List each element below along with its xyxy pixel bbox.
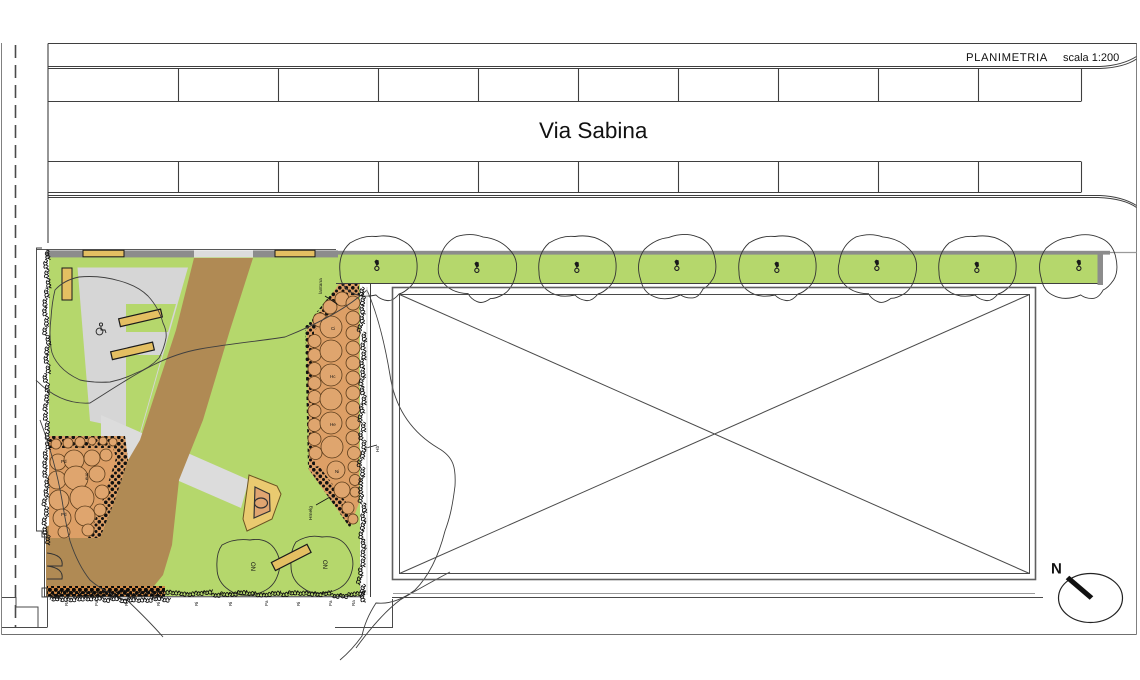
svg-text:Ci: Ci	[331, 326, 335, 331]
svg-text:lantana: lantana	[318, 278, 324, 294]
svg-text:Ni: Ni	[335, 469, 339, 474]
svg-text:He: He	[330, 422, 336, 427]
svg-text:Pa: Pa	[328, 600, 333, 606]
svg-text:scala 1:200: scala 1:200	[1063, 52, 1119, 64]
svg-text:ON: ON	[249, 562, 255, 571]
svg-text:Hc: Hc	[330, 374, 336, 379]
svg-text:N: N	[1051, 561, 1062, 578]
svg-text:Ri: Ri	[124, 602, 129, 606]
svg-text:Ra: Ra	[64, 600, 69, 606]
svg-text:euc: euc	[84, 472, 89, 480]
svg-text:Hb: Hb	[375, 446, 381, 452]
svg-text:Pa: Pa	[264, 600, 269, 606]
svg-text:PLANIMETRIA: PLANIMETRIA	[966, 52, 1048, 64]
svg-text:Pd: Pd	[61, 459, 67, 464]
svg-text:Ri: Ri	[194, 602, 199, 606]
svg-text:Ri: Ri	[296, 602, 301, 606]
svg-text:Ri: Ri	[156, 602, 161, 606]
svg-text:Ra: Ra	[351, 600, 356, 606]
svg-text:Ri: Ri	[228, 602, 233, 606]
svg-text:Hmelg: Hmelg	[308, 506, 314, 520]
svg-text:ON: ON	[321, 560, 327, 569]
svg-text:Via Sabina: Via Sabina	[539, 118, 648, 143]
svg-text:Pa: Pa	[94, 600, 99, 606]
